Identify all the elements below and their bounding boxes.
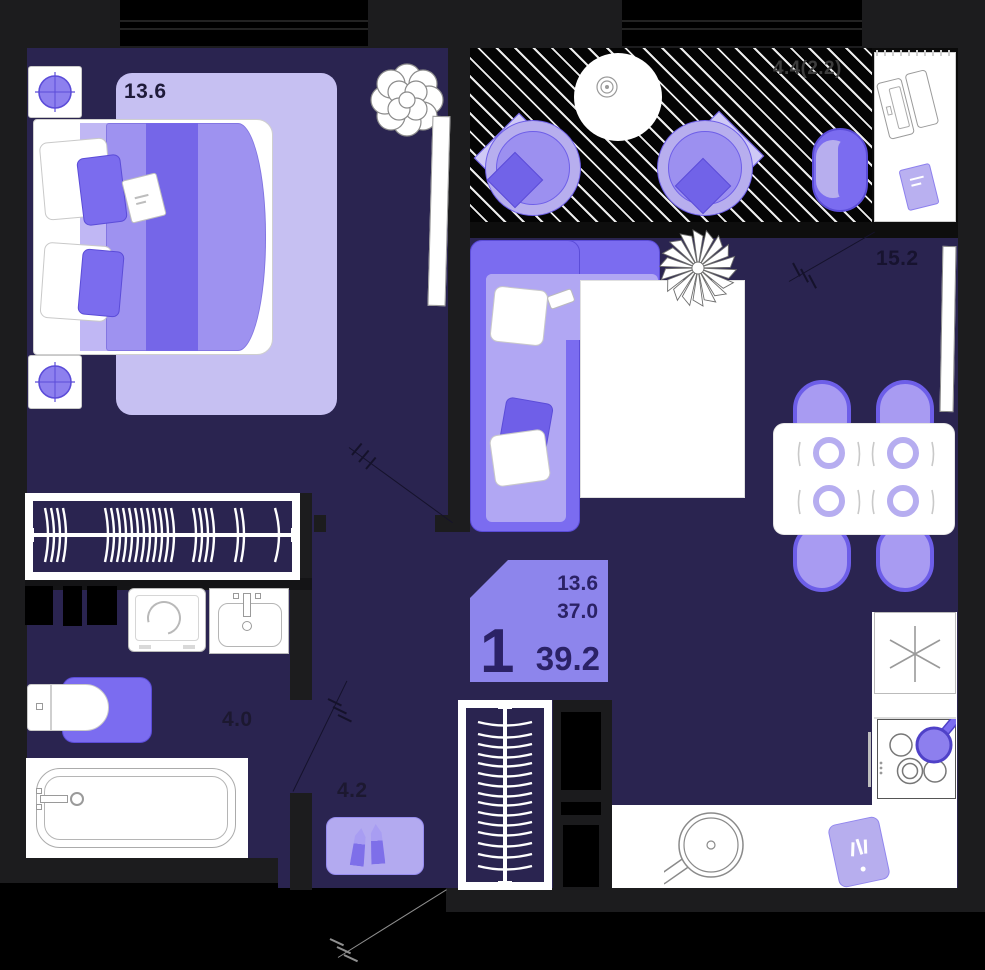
duct-opening [561,712,601,790]
rooms-count: 1 [480,623,514,680]
sink-faucet [243,593,251,617]
living-area-value: 13.6 [557,572,598,596]
window-balcony [622,0,862,46]
oven-handle [868,732,871,787]
bathroom-area-label: 4.0 [222,708,252,732]
laptop-touchpad [888,86,910,130]
wall-bedroom-door-corner [435,515,470,532]
window-glass-line [120,20,368,22]
sink-handle [233,593,239,599]
bathtub-handle [36,788,42,794]
window-bedroom [120,0,368,46]
living-area-label: 15.2 [876,247,918,271]
vent-shaft [25,586,53,625]
toilet-button [36,703,43,710]
board-mark [864,840,867,854]
washer-foot [139,645,151,649]
plate [887,437,919,469]
cutlery-marks [774,424,954,534]
total-area-value: 39.2 [536,640,600,678]
bathroom-sink [209,588,289,654]
bed-pillow [77,248,125,317]
stove-burners [877,719,956,799]
radiator-ticks [876,50,954,56]
plate [887,485,919,517]
sink-handle [255,593,261,599]
notepad-line [910,176,924,181]
table-lamp [33,360,77,404]
plate [813,437,845,469]
outside-area [446,912,985,970]
living-rug [580,280,745,498]
bathtub-drain [70,792,84,806]
book-line [136,201,146,205]
apartment-info-badge: 1 13.6 37.0 39.2 [470,560,608,682]
window-glass-line [622,20,862,22]
toilet-bowl [27,684,109,731]
toilet-divider [50,685,52,730]
balcony-chair [483,118,583,218]
closet-hangers-bedroom [25,493,300,580]
window-glass-line [622,28,862,30]
laptop-key [886,106,893,116]
pan [664,800,764,888]
plate [813,485,845,517]
book-line [135,194,149,199]
duct-opening [563,825,599,887]
washer-foot [183,645,195,649]
snowflake-icon [885,624,945,684]
vent-shaft [63,586,82,626]
outside-area [278,888,446,970]
bed-pillow [76,154,128,227]
desk-chair [812,128,868,212]
plant-spiky [656,226,740,310]
floor-plan: 13.6 [0,0,985,970]
closet-hangers-hallway [458,700,552,890]
notepad-line [911,182,921,186]
window-glass-line [120,28,368,30]
vent-shaft [87,586,117,625]
desk-chair-inner [838,138,860,202]
board-mark [851,842,854,856]
wall-stub [314,515,326,532]
board-hole [860,866,866,872]
sofa-pillow [489,285,549,346]
duct-opening [561,802,601,815]
bathtub [26,758,248,858]
table-center-detail [592,72,622,102]
wall-left [0,0,27,883]
wall-bottom-kitchen [446,888,958,912]
bathtub-faucet [40,795,68,803]
bathtub-basin [44,776,228,840]
area-without-balcony-value: 37.0 [557,600,598,624]
duct-column [553,700,612,890]
wall-bottom-bathroom [0,858,278,883]
wall-right [958,0,985,912]
sofa-pillow [489,428,552,487]
tv-panel [940,246,957,412]
table-lamp [33,70,77,114]
bed-blanket-stripe [146,123,198,351]
board-mark [856,839,863,855]
bathtub-handle [36,804,42,810]
sink-drain [242,621,252,631]
bedroom-area-label: 13.6 [124,80,166,104]
outside-area [0,883,278,970]
hallway-area-label: 4.2 [337,779,367,803]
balcony-area-label: 4.4(2.2) [773,58,842,80]
wall-bathroom-right-lower [290,793,312,890]
balcony-chair [655,118,755,218]
washing-machine [128,588,206,652]
